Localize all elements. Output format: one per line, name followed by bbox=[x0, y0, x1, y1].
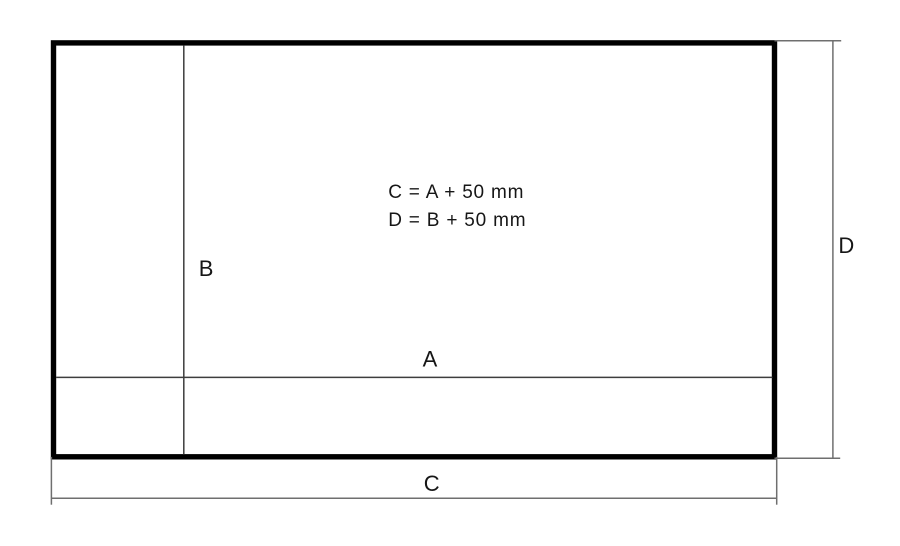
svg-text:A: A bbox=[423, 347, 438, 372]
svg-text:D = B + 50 mm: D = B + 50 mm bbox=[388, 210, 526, 231]
svg-text:D: D bbox=[838, 233, 854, 258]
svg-text:B: B bbox=[199, 256, 214, 281]
svg-text:C: C bbox=[424, 471, 440, 496]
svg-text:C = A + 50 mm: C = A + 50 mm bbox=[388, 182, 524, 203]
